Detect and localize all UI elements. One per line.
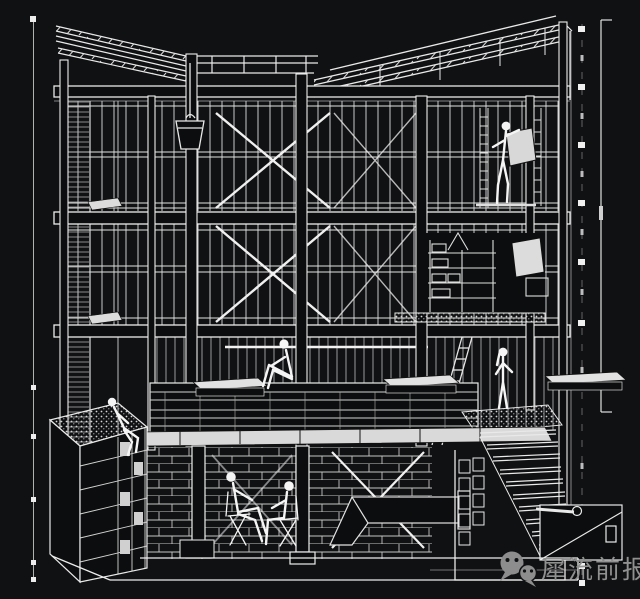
basement — [140, 446, 470, 564]
stair-landing — [536, 505, 622, 560]
drawing-canvas: 犀流前报 — [0, 0, 640, 599]
watermark-text: 犀流前报 — [541, 556, 640, 584]
planted-edge — [395, 313, 545, 322]
section-drawing: 犀流前报 — [0, 0, 640, 599]
gravel-planter-box — [50, 403, 147, 582]
